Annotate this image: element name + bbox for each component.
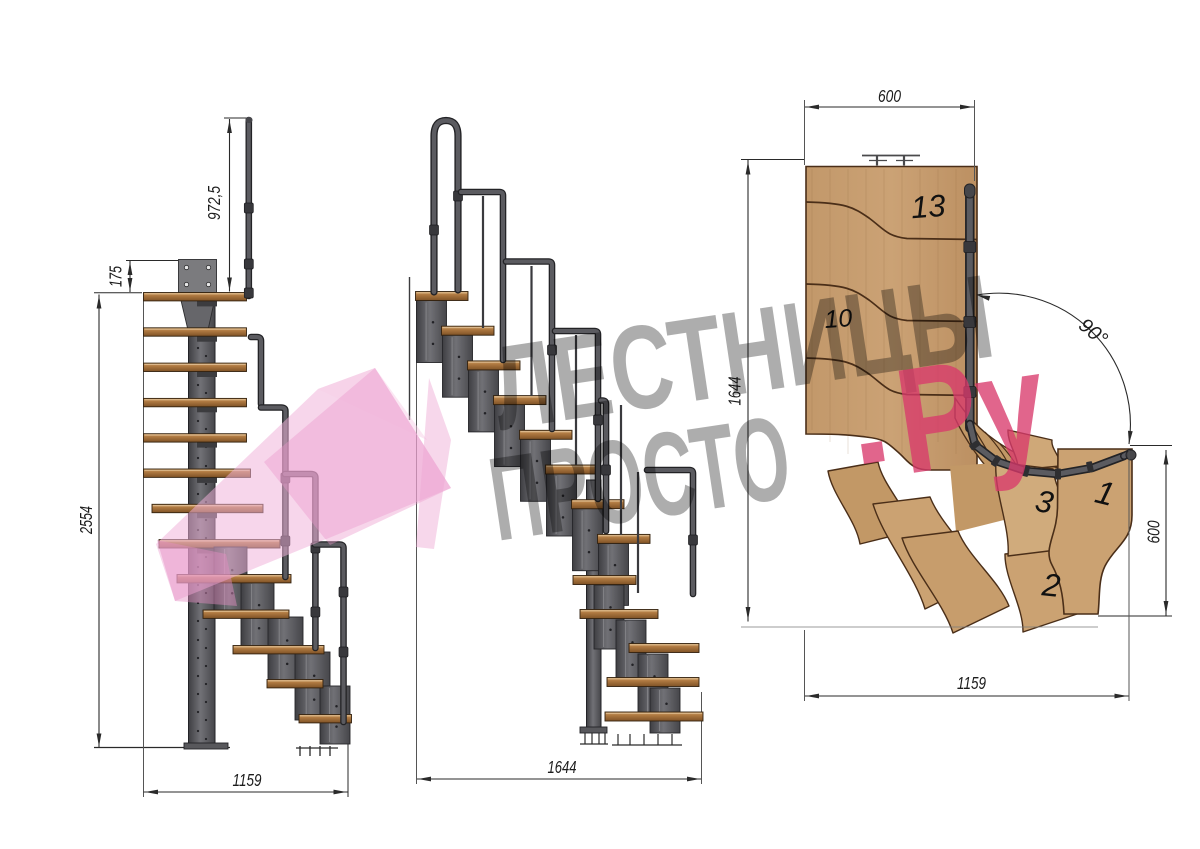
svg-text:972,5: 972,5 xyxy=(204,186,224,220)
svg-text:13: 13 xyxy=(910,188,947,225)
svg-text:175: 175 xyxy=(106,266,126,287)
svg-text:2554: 2554 xyxy=(76,506,96,535)
svg-text:1159: 1159 xyxy=(233,770,262,790)
svg-text:600: 600 xyxy=(878,86,901,106)
svg-text:1159: 1159 xyxy=(957,673,986,693)
svg-text:2: 2 xyxy=(1040,566,1063,604)
svg-text:600: 600 xyxy=(1144,520,1164,543)
svg-text:1644: 1644 xyxy=(548,757,577,777)
svg-text:Ру: Ру xyxy=(886,318,1056,506)
